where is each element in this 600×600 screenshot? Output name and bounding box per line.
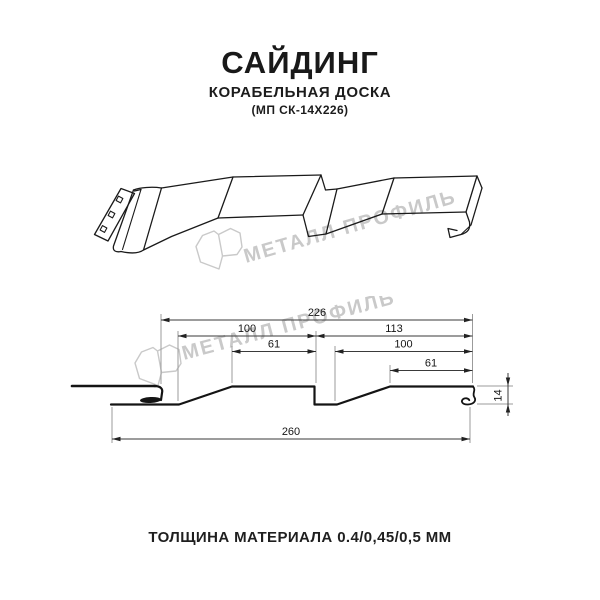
dim-label-100-left: 100	[238, 323, 256, 335]
page-title: САЙДИНГ	[0, 48, 600, 78]
dim-label-61-right: 61	[425, 358, 437, 370]
product-subtitle: КОРАБЕЛЬНАЯ ДОСКА	[0, 84, 600, 101]
dimension-lines	[112, 320, 508, 439]
material-thickness-note: ТОЛЩИНА МАТЕРИАЛА 0.4/0,45/0,5 ММ	[0, 529, 600, 546]
watermark-text: МЕТАЛЛ ПРОФИЛЬ	[180, 296, 398, 365]
product-model-code: (МП СК-14Х226)	[0, 103, 600, 117]
dim-label-113: 113	[385, 323, 403, 335]
dim-label-14: 14	[493, 389, 505, 401]
dim-label-226: 226	[308, 307, 326, 319]
brand-logo-outline	[196, 229, 242, 270]
profile-3d-drawing: МЕТАЛЛ ПРОФИЛЬ	[80, 158, 505, 276]
lock-hook	[140, 396, 161, 403]
nail-holes	[100, 196, 123, 232]
section-profile	[72, 386, 475, 405]
profile-section-drawing: МЕТАЛЛ ПРОФИЛЬ 226 100	[55, 296, 520, 450]
dim-label-100-right: 100	[394, 339, 412, 351]
dim-label-260: 260	[282, 426, 300, 438]
dim-label-61-left: 61	[268, 339, 280, 351]
extension-lines	[112, 314, 513, 443]
watermark-lower: МЕТАЛЛ ПРОФИЛЬ	[135, 296, 398, 386]
brand-logo-outline	[135, 345, 181, 386]
watermark-text: МЕТАЛЛ ПРОФИЛЬ	[241, 186, 459, 268]
